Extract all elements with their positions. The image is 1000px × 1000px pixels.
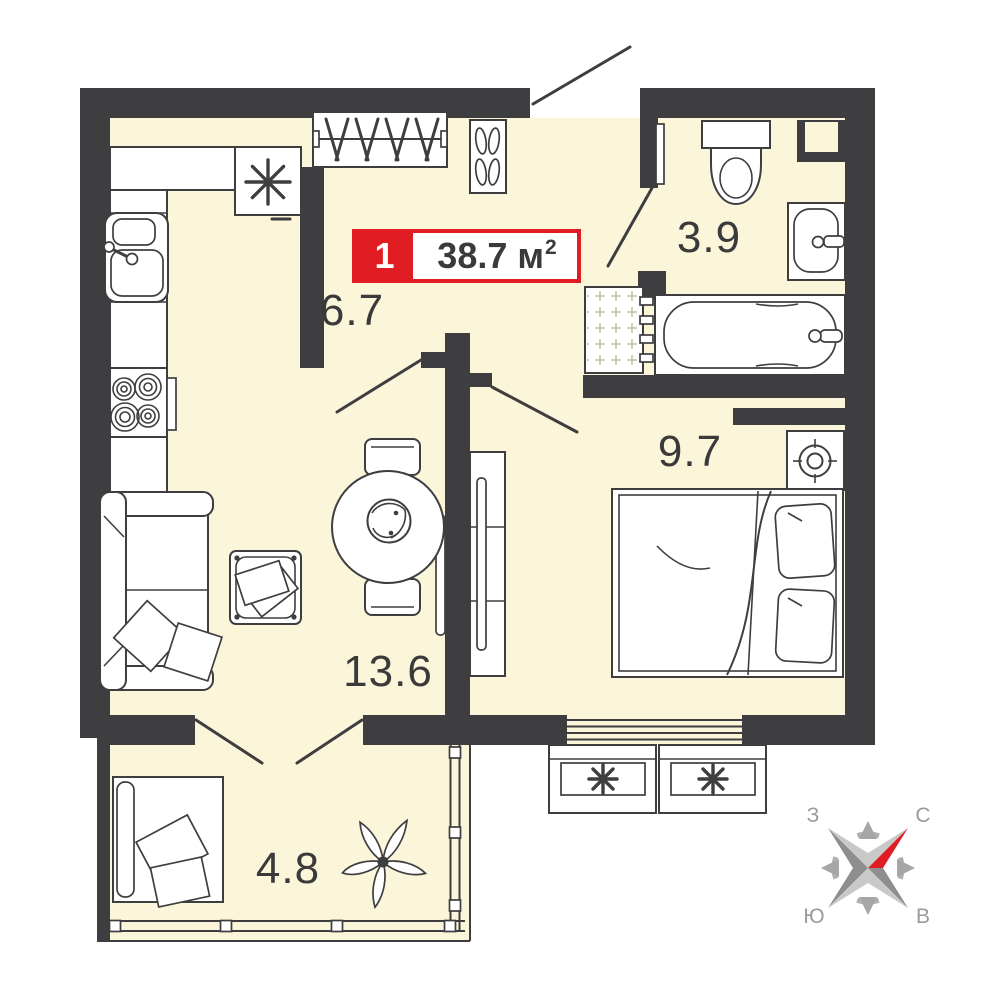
double-bed: [612, 489, 843, 677]
room-label-bedroom: 9.7: [658, 427, 722, 477]
fridge: [235, 147, 301, 219]
compass-south-label: Ю: [803, 905, 824, 929]
ac-asterisk-icon: [589, 765, 617, 793]
room-label-bathroom: 3.9: [677, 213, 741, 263]
badge-area-sup: 2: [545, 236, 557, 260]
bathtub: [655, 295, 845, 375]
bed-pillow: [775, 503, 836, 579]
stove: [110, 368, 176, 437]
compass-east-label: В: [916, 905, 930, 929]
sofa: [100, 492, 222, 690]
entrance-door-swing: [533, 47, 630, 104]
balcony-daybed: [113, 777, 223, 907]
ac-asterisk-icon: [699, 765, 727, 793]
floorplan-canvas: 6.7 3.9 9.7 13.6 4.8 1 38.7 м2 З С Ю В: [0, 0, 1000, 1000]
badge-total-area: 38.7 м2: [417, 233, 577, 279]
badge-area-value: 38.7 м: [437, 235, 544, 277]
compass-west-label: З: [807, 804, 820, 828]
bed-pillow: [775, 589, 835, 664]
badge-rooms-count: 1: [356, 233, 413, 279]
compass-north-label: С: [915, 804, 930, 828]
utility-hatch-box: [585, 287, 653, 373]
fridge-asterisk-icon: [246, 160, 290, 204]
chair: [365, 439, 420, 475]
room-label-balcony: 4.8: [256, 844, 320, 894]
hallway-closet-hangers: [313, 112, 447, 167]
ac-unit: [549, 745, 656, 813]
wardrobe: [470, 452, 505, 676]
coffee-table: [230, 551, 301, 624]
floorplan-drawing: [0, 0, 1000, 1000]
compass-rose-icon: [821, 821, 915, 915]
kitchen-sink: [104, 213, 168, 302]
washbasin: [788, 203, 845, 280]
area-badge: 1 38.7 м2: [352, 229, 581, 283]
chair: [365, 579, 420, 615]
room-label-hallway: 6.7: [320, 286, 384, 336]
ac-unit: [659, 745, 766, 813]
shoe-cabinet: [470, 120, 506, 193]
room-label-living: 13.6: [343, 647, 433, 697]
nightstand-lamp: [787, 431, 844, 490]
